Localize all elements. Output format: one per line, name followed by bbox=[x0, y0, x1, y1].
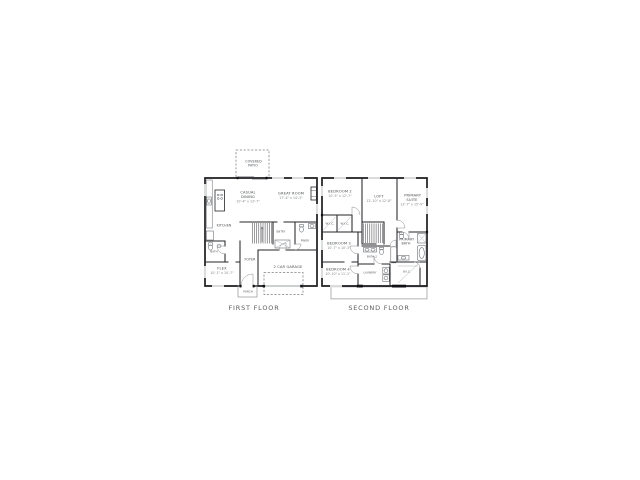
garage-apron-outline bbox=[264, 273, 303, 295]
toilet-icon bbox=[380, 250, 384, 255]
second-floor-title: SECOND FLOOR bbox=[348, 304, 409, 312]
room-label-bath: BATH bbox=[210, 250, 217, 253]
stairs-first-floor bbox=[253, 223, 272, 244]
room-label-loft: LOFT 12'-10" x 12'-8" bbox=[366, 195, 391, 204]
room-label-casual-dining: CASUAL DINING 10'-4" x 13'-7" bbox=[236, 190, 259, 203]
toilet-icon bbox=[209, 243, 221, 250]
room-label-bedroom2: BEDROOM 2 10'-5" x 12'-7" bbox=[328, 190, 352, 199]
room-label-laundry: LAUNDRY bbox=[363, 271, 376, 274]
room-label-bedroom3: BEDROOM 3 10'-7" x 10'-3" bbox=[327, 242, 351, 251]
room-label-bath2: BATH 2 bbox=[367, 255, 377, 258]
room-label-wic-a: W.I.C. bbox=[325, 222, 334, 226]
room-label-powder: PWDR bbox=[301, 239, 309, 242]
room-label-wic: W.I.C. bbox=[403, 270, 411, 273]
kitchen-counter bbox=[206, 180, 213, 240]
room-label-primary-suite: PRIMARY SUITE 13'-7" x 15'-9" bbox=[400, 193, 423, 206]
fireplace-icon bbox=[311, 187, 317, 200]
floor-plan-image: COVERED PATIO CASUAL DINING 10'-4" x 13'… bbox=[0, 0, 640, 480]
kitchen-island bbox=[215, 190, 225, 211]
floor-plan-drawing bbox=[0, 0, 640, 480]
bathtub-icon bbox=[391, 247, 397, 263]
toilet-icon bbox=[300, 227, 304, 232]
room-label-bedroom4: BEDROOM 4 10'-10" x 11'-2" bbox=[325, 268, 350, 277]
room-label-kitchen: KITCHEN bbox=[217, 224, 232, 228]
lower-roof-outline bbox=[331, 287, 427, 299]
powder-room-fixtures bbox=[300, 224, 316, 233]
stairs-second-floor bbox=[364, 224, 383, 244]
double-vanity-icon bbox=[364, 248, 377, 253]
fridge-icon bbox=[206, 231, 213, 240]
vanity-icon bbox=[309, 224, 316, 229]
room-label-entry: ENTRY bbox=[277, 230, 286, 233]
room-label-wic-b: W.I.C. bbox=[340, 222, 349, 226]
first-floor-title: FIRST FLOOR bbox=[228, 304, 279, 312]
room-label-foyer: FOYER bbox=[244, 258, 255, 262]
washer-dryer-icon bbox=[383, 268, 390, 282]
room-label-great-room: GREAT ROOM 17'-4" x 14'-3" bbox=[278, 192, 304, 201]
room-label-porch: PORCH bbox=[243, 290, 253, 293]
sink-icon bbox=[310, 225, 314, 228]
room-label-flex: FLEX 10'-1" x 10'-7" bbox=[210, 267, 233, 276]
primary-bath-fixtures bbox=[398, 232, 426, 260]
room-label-covered-patio: COVERED PATIO bbox=[245, 160, 261, 168]
room-label-garage: 2 CAR GARAGE bbox=[274, 265, 303, 270]
room-label-primary-bath: PRIMARY BATH bbox=[399, 238, 413, 246]
